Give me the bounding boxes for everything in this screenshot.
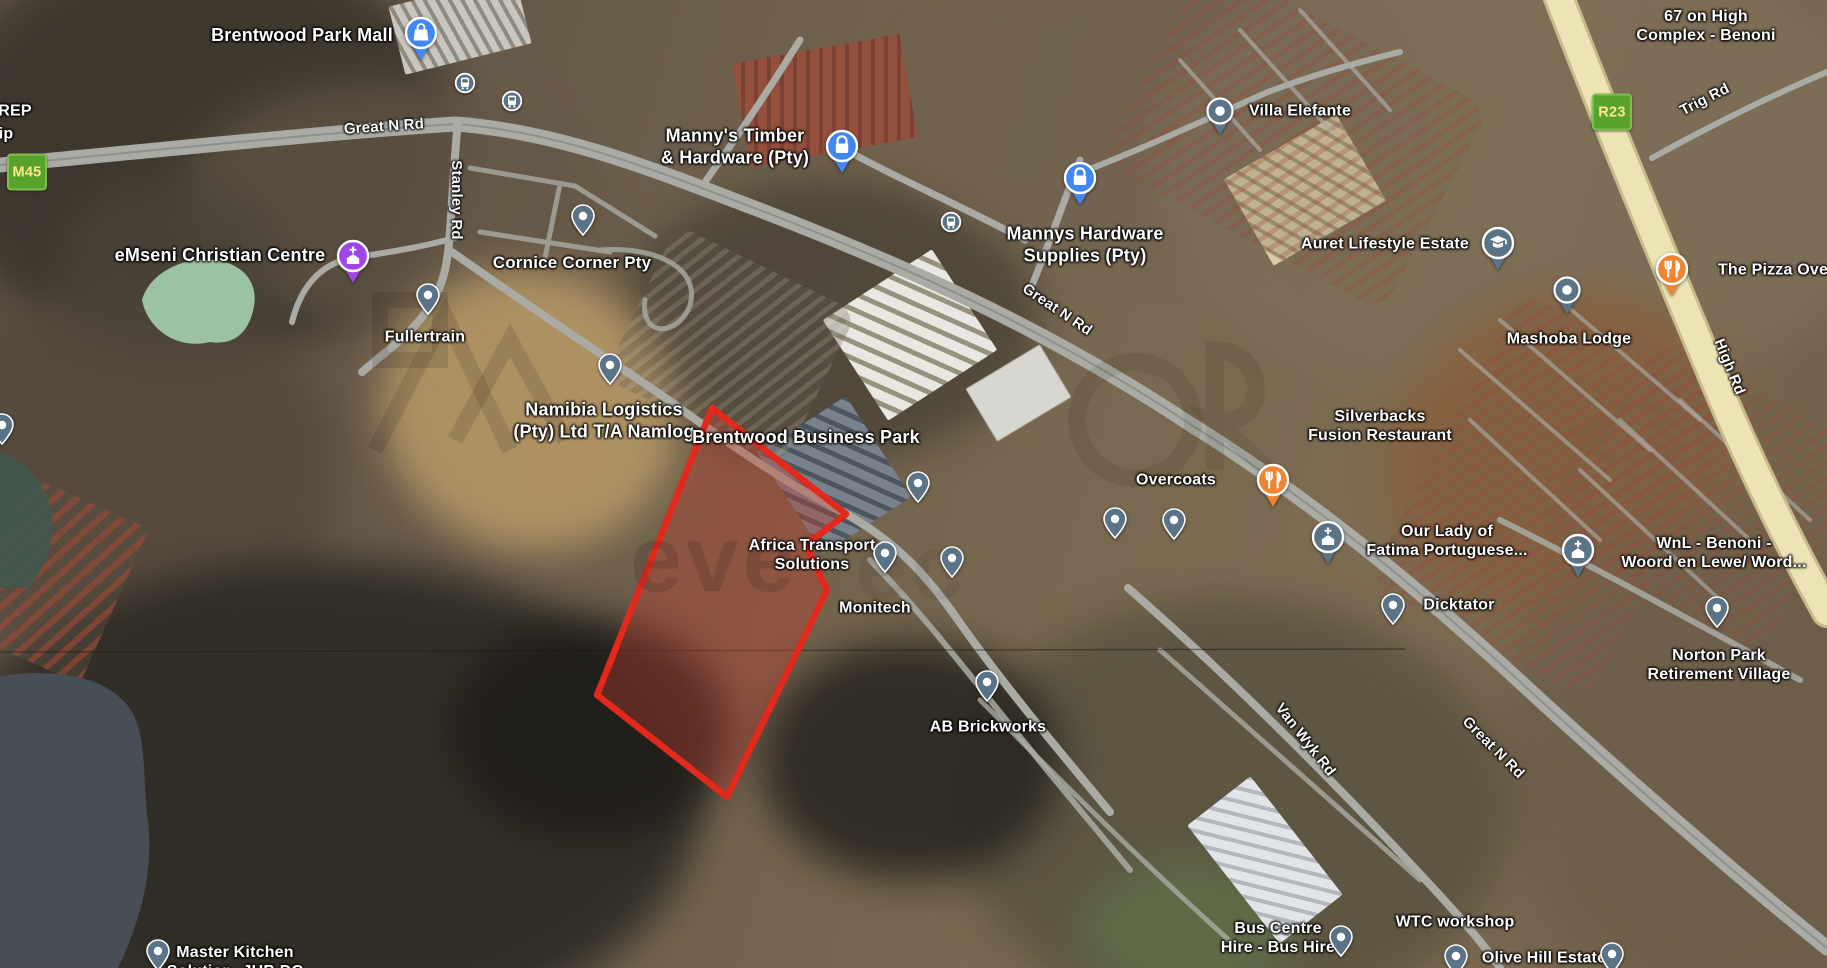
left-edge-pin[interactable] (0, 413, 14, 445)
poi-dot-icon (146, 958, 170, 968)
silverbacks-pin[interactable] (1254, 462, 1292, 508)
bus-stop-1-pin[interactable] (454, 72, 476, 94)
place-label-overcoats[interactable]: Overcoats (1136, 470, 1216, 489)
the-pizza-oven-pin[interactable] (1653, 251, 1691, 297)
emseni-christian-centre-pin[interactable] (334, 238, 372, 284)
namibia-logistics-pin[interactable] (598, 353, 622, 385)
poi-dot-icon (1204, 123, 1236, 140)
industrial-2-pin[interactable] (1103, 507, 1127, 539)
africa-transport-1-pin[interactable] (873, 541, 897, 573)
olive-hill-estate-pin[interactable] (1600, 942, 1624, 968)
place-label-monitech[interactable]: Monitech (839, 598, 911, 617)
mannys-hardware-pin[interactable] (1061, 160, 1099, 206)
graduation-cap-icon (1479, 258, 1517, 275)
bus-icon (501, 99, 523, 116)
place-label-africa-transport-solutions[interactable]: Africa Transport Solutions (749, 536, 876, 574)
poi-dot-icon (1103, 526, 1127, 543)
route-badge-r23: R23 (1592, 94, 1632, 131)
church-icon (1309, 552, 1347, 569)
place-label-ab-brickworks[interactable]: AB Brickworks (930, 717, 1046, 736)
lock-icon (1061, 193, 1099, 210)
lock-icon (823, 161, 861, 178)
mashoba-lodge-pin[interactable] (1551, 275, 1583, 315)
place-label-the-pizza-ove[interactable]: The Pizza Ove (1718, 260, 1827, 279)
place-label-cornice-corner-pty[interactable]: Cornice Corner Pty (493, 253, 652, 273)
poi-dot-icon (1600, 961, 1624, 968)
bus-stop-2-pin[interactable] (501, 90, 523, 112)
our-lady-of-fatima-pin[interactable] (1309, 519, 1347, 565)
mannys-timber-pin[interactable] (823, 128, 861, 174)
place-label-manny-s-timber-hardware-pty[interactable]: Manny's Timber & Hardware (Pty) (661, 125, 809, 168)
place-label-wnl-benoni-woord-en-lewe-word[interactable]: WnL - Benoni - Woord en Lewe/ Word... (1621, 534, 1806, 572)
poi-dot-icon (873, 560, 897, 577)
place-label-dicktator[interactable]: Dicktator (1423, 595, 1494, 614)
africa-transport-2-pin[interactable] (940, 546, 964, 578)
church-icon (1559, 565, 1597, 582)
place-label-namibia-logistics-pty-ltd-t-a-[interactable]: Namibia Logistics (Pty) Ltd T/A Namlog (513, 399, 694, 442)
villa-elefante-pin[interactable] (1204, 96, 1236, 136)
place-label-our-lady-of-fatima-portuguese[interactable]: Our Lady of Fatima Portuguese... (1366, 522, 1527, 560)
poi-dot-icon (1162, 527, 1186, 544)
place-label-emseni-christian-centre[interactable]: eMseni Christian Centre (115, 245, 326, 267)
poi-dot-icon (571, 223, 595, 240)
place-label-67-on-high-complex-benoni[interactable]: 67 on High Complex - Benoni (1636, 7, 1775, 45)
poi-dot-icon (940, 565, 964, 582)
poi-dot-icon (1381, 612, 1405, 629)
industrial-1-pin[interactable] (906, 471, 930, 503)
bus-stop-3-pin[interactable] (940, 211, 962, 233)
poi-dot-icon (1705, 615, 1729, 632)
place-label-wtc-workshop[interactable]: WTC workshop (1396, 912, 1515, 931)
overcoats-pin[interactable] (1162, 508, 1186, 540)
road-label-stanley-rd: Stanley Rd (447, 160, 465, 240)
cornice-corner-pin[interactable] (571, 204, 595, 236)
poi-dot-icon (0, 432, 14, 449)
restaurant-icon (1254, 495, 1292, 512)
place-label-brentwood-park-mall[interactable]: Brentwood Park Mall (211, 25, 393, 47)
fullertrain-pin[interactable] (416, 283, 440, 315)
satellite-map-canvas[interactable]: eve ec M45R23Great N RdStanley RdGreat N… (0, 0, 1827, 968)
place-label-brentwood-business-park[interactable]: Brentwood Business Park (692, 427, 920, 449)
place-label-master-kitchen-solution-jhb-dc[interactable]: Master Kitchen Solution- JHB DC (167, 943, 304, 968)
poi-dot-icon (598, 372, 622, 389)
poi-dot-icon (1329, 944, 1353, 961)
restaurant-icon (1653, 284, 1691, 301)
wnl-benoni-pin[interactable] (1559, 532, 1597, 578)
poi-dot-icon (906, 490, 930, 507)
shopping-bag-icon (402, 48, 440, 65)
brentwood-park-mall-pin[interactable] (402, 15, 440, 61)
place-label-mashoba-lodge[interactable]: Mashoba Lodge (1507, 329, 1631, 348)
place-label-villa-elefante[interactable]: Villa Elefante (1249, 101, 1351, 120)
place-label-auret-lifestyle-estate[interactable]: Auret Lifestyle Estate (1301, 234, 1469, 253)
church-icon (334, 271, 372, 288)
ab-brickworks-pin[interactable] (975, 670, 999, 702)
norton-park-pin[interactable] (1705, 596, 1729, 628)
poi-dot-icon (975, 689, 999, 706)
place-label-bus-centre-hire-bus-hire[interactable]: Bus Centre Hire - Bus Hire (1221, 919, 1335, 957)
place-label-silverbacks-fusion-restaurant[interactable]: Silverbacks Fusion Restaurant (1308, 407, 1452, 445)
place-label-mannys-hardware-supplies-pty[interactable]: Mannys Hardware Supplies (Pty) (1006, 223, 1163, 266)
wtc-workshop-pin[interactable] (1444, 944, 1468, 968)
bus-centre-hire-pin[interactable] (1329, 925, 1353, 957)
place-label-olive-hill-estate[interactable]: Olive Hill Estate (1482, 948, 1606, 967)
dicktator-pin[interactable] (1381, 593, 1405, 625)
poi-dot-icon (416, 302, 440, 319)
master-kitchen-pin[interactable] (146, 939, 170, 968)
bus-icon (454, 81, 476, 98)
place-label-norton-park-retirement-village[interactable]: Norton Park Retirement Village (1648, 646, 1791, 684)
place-label-rep[interactable]: REP (0, 101, 32, 120)
route-badge-m45: M45 (7, 154, 47, 191)
poi-dot-icon (1444, 963, 1468, 968)
place-label-fullertrain[interactable]: Fullertrain (385, 327, 465, 346)
poi-dot-icon (1551, 302, 1583, 319)
auret-lifestyle-pin[interactable] (1479, 225, 1517, 271)
bus-icon (940, 220, 962, 237)
place-label-ip[interactable]: ip (0, 124, 13, 143)
